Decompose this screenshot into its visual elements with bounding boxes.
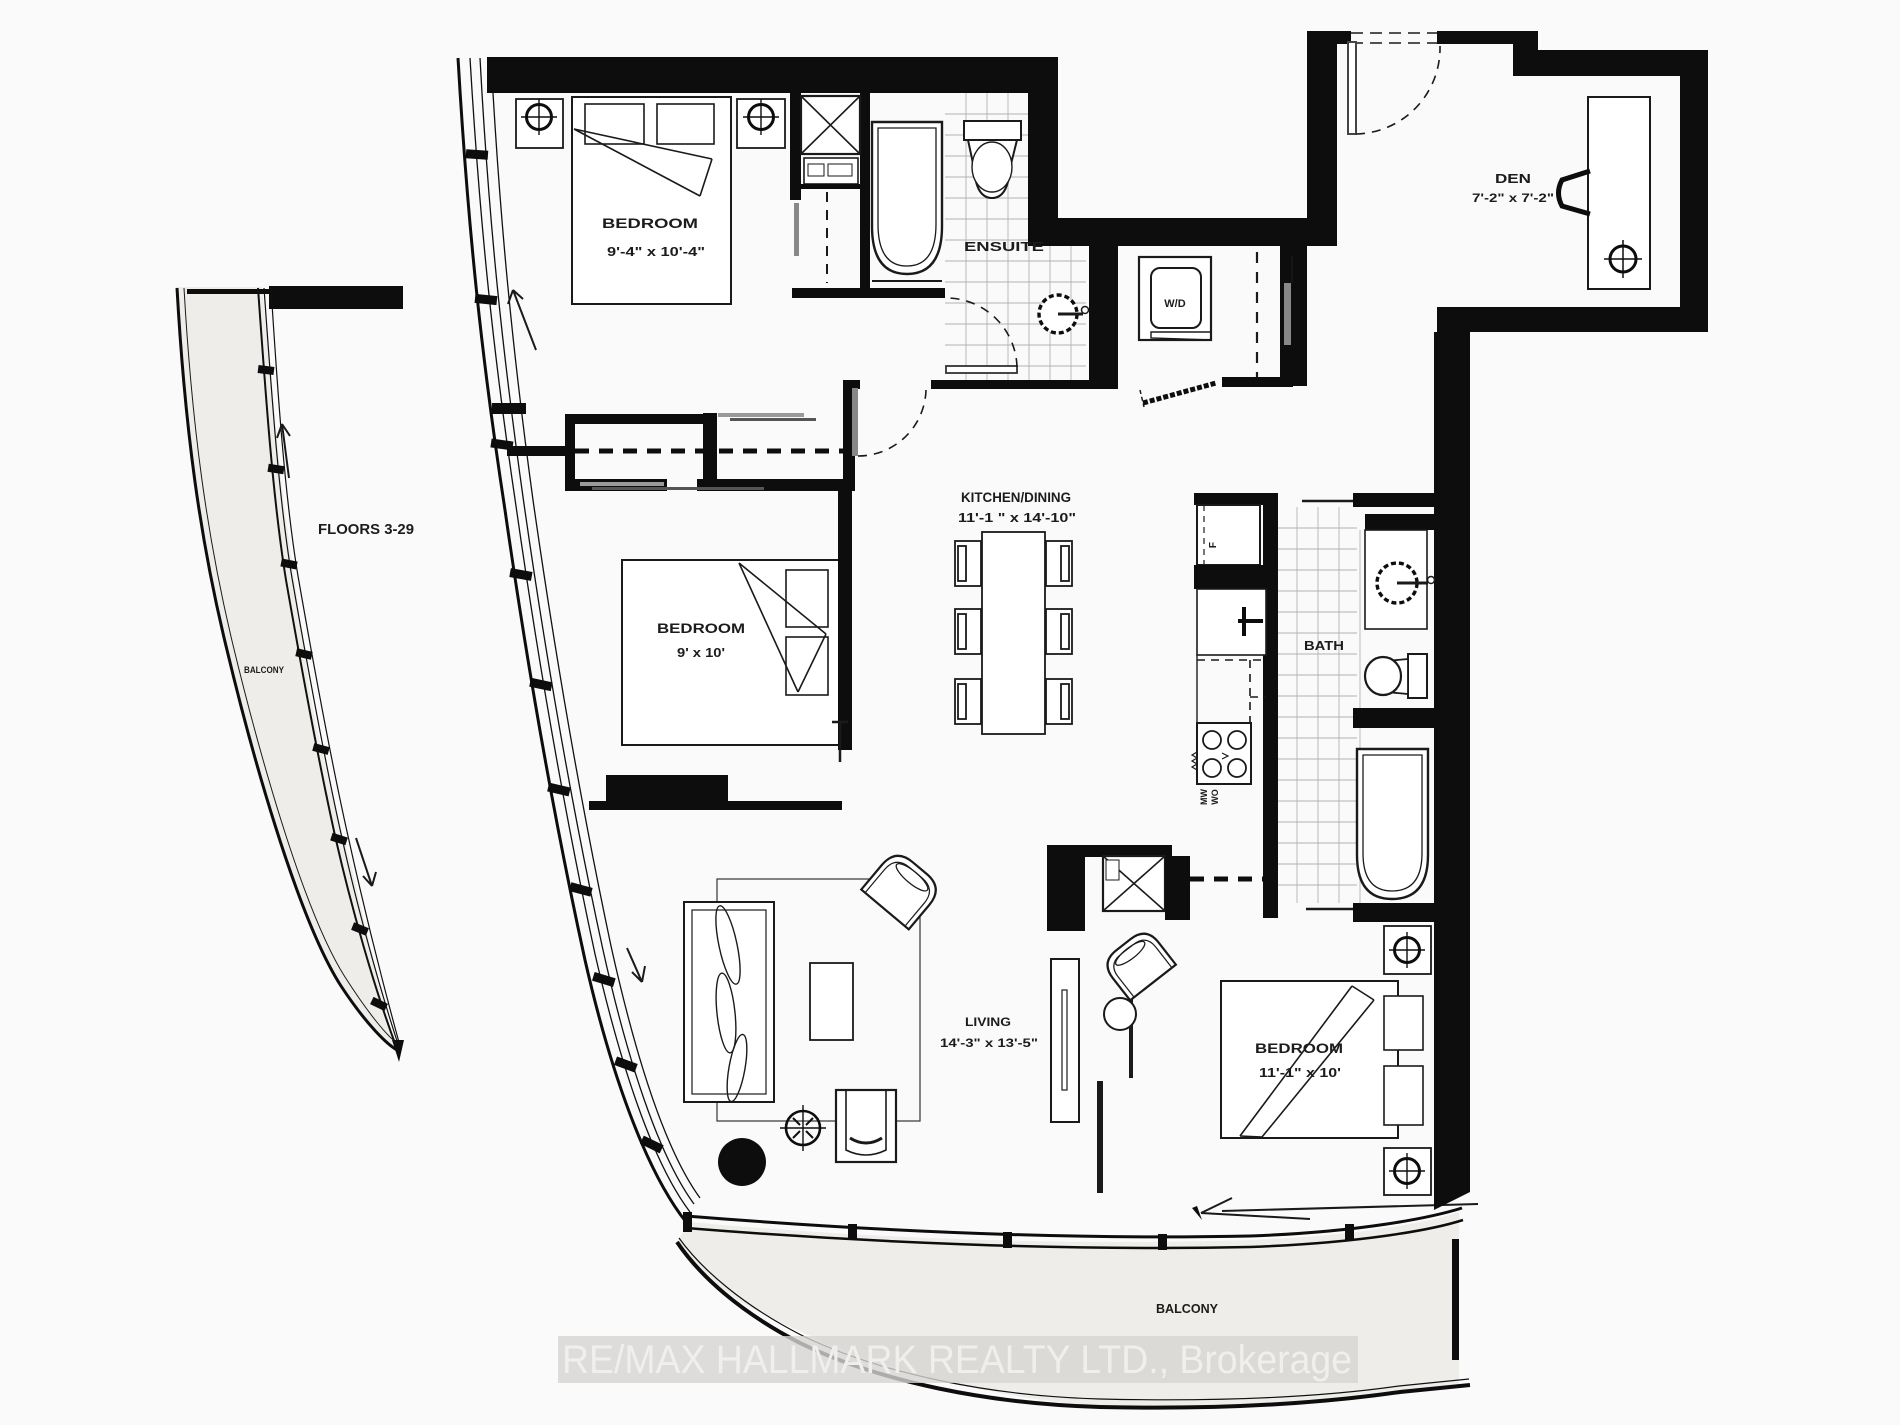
svg-text:BALCONY: BALCONY <box>244 665 284 675</box>
svg-text:BEDROOM: BEDROOM <box>1255 1041 1343 1056</box>
svg-text:11'-1" x 10': 11'-1" x 10' <box>1259 1066 1341 1080</box>
svg-text:9'-4" x 10'-4": 9'-4" x 10'-4" <box>607 245 705 259</box>
svg-text:LIVING: LIVING <box>965 1015 1011 1029</box>
svg-text:BEDROOM: BEDROOM <box>602 216 698 231</box>
svg-text:14'-3" x 13'-5": 14'-3" x 13'-5" <box>940 1036 1038 1050</box>
svg-text:FLOORS 3-29: FLOORS 3-29 <box>318 521 414 538</box>
svg-text:RE/MAX HALLMARK REALTY LTD., B: RE/MAX HALLMARK REALTY LTD., Brokerage <box>562 1338 1352 1382</box>
svg-text:BATH: BATH <box>1304 639 1344 653</box>
svg-text:MW: MW <box>1199 789 1209 805</box>
svg-text:7'-2" x 7'-2": 7'-2" x 7'-2" <box>1472 193 1554 205</box>
svg-text:KITCHEN/DINING: KITCHEN/DINING <box>961 490 1071 505</box>
svg-text:11'-1 " x 14'-10": 11'-1 " x 14'-10" <box>958 511 1076 525</box>
svg-text:WO: WO <box>1210 789 1220 805</box>
svg-text:DEN: DEN <box>1495 172 1531 186</box>
svg-text:9' x 10': 9' x 10' <box>677 646 725 660</box>
svg-text:ENSUITE: ENSUITE <box>964 240 1044 254</box>
svg-text:BALCONY: BALCONY <box>1156 1301 1218 1316</box>
svg-text:F: F <box>1208 542 1219 548</box>
svg-text:BEDROOM: BEDROOM <box>657 621 745 636</box>
svg-text:W/D: W/D <box>1164 298 1185 310</box>
